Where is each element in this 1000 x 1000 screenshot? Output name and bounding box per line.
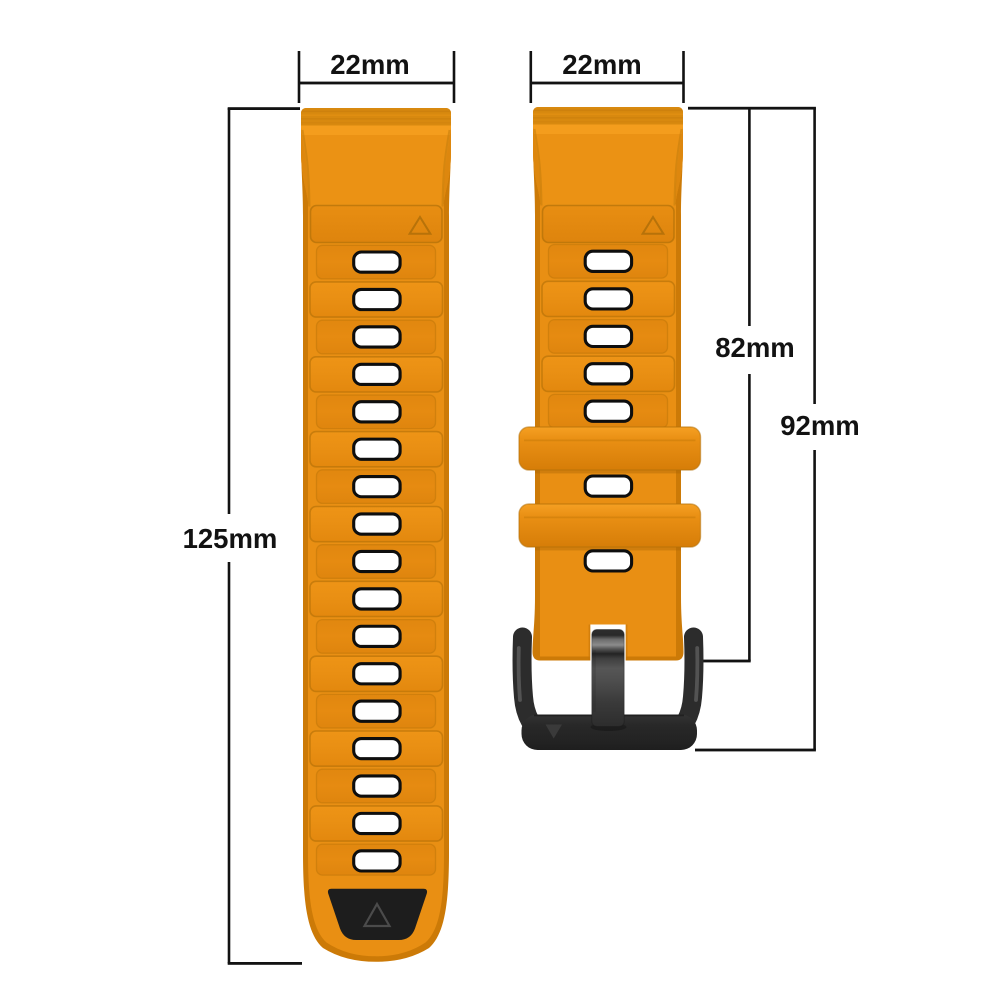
svg-text:82mm: 82mm [715, 332, 795, 363]
svg-text:92mm: 92mm [780, 410, 860, 441]
svg-text:22mm: 22mm [562, 49, 642, 80]
svg-text:22mm: 22mm [330, 49, 410, 80]
svg-text:125mm: 125mm [183, 523, 278, 554]
